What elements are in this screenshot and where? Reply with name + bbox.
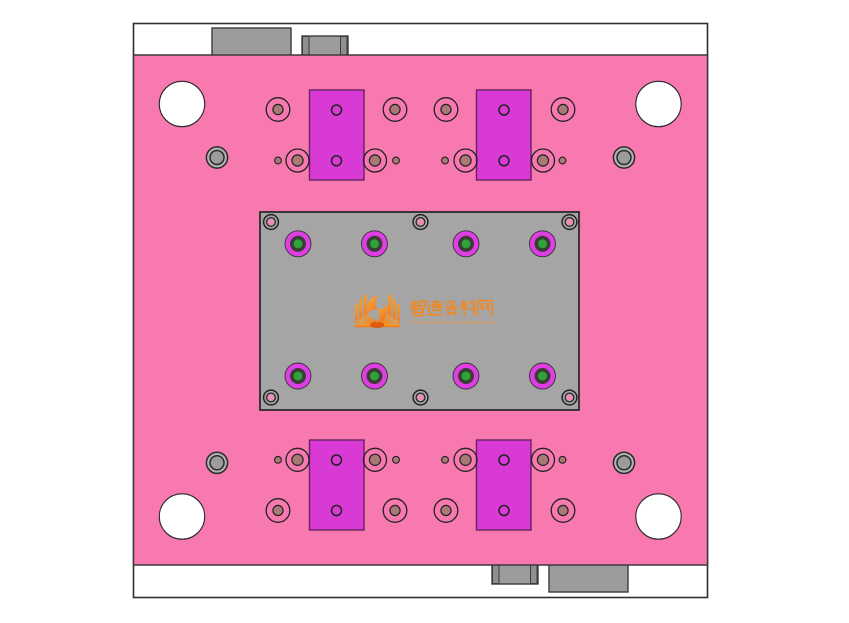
svg-text:INTELLIGENT MANUFACTURING DATA: INTELLIGENT MANUFACTURING DATA bbox=[411, 320, 497, 325]
